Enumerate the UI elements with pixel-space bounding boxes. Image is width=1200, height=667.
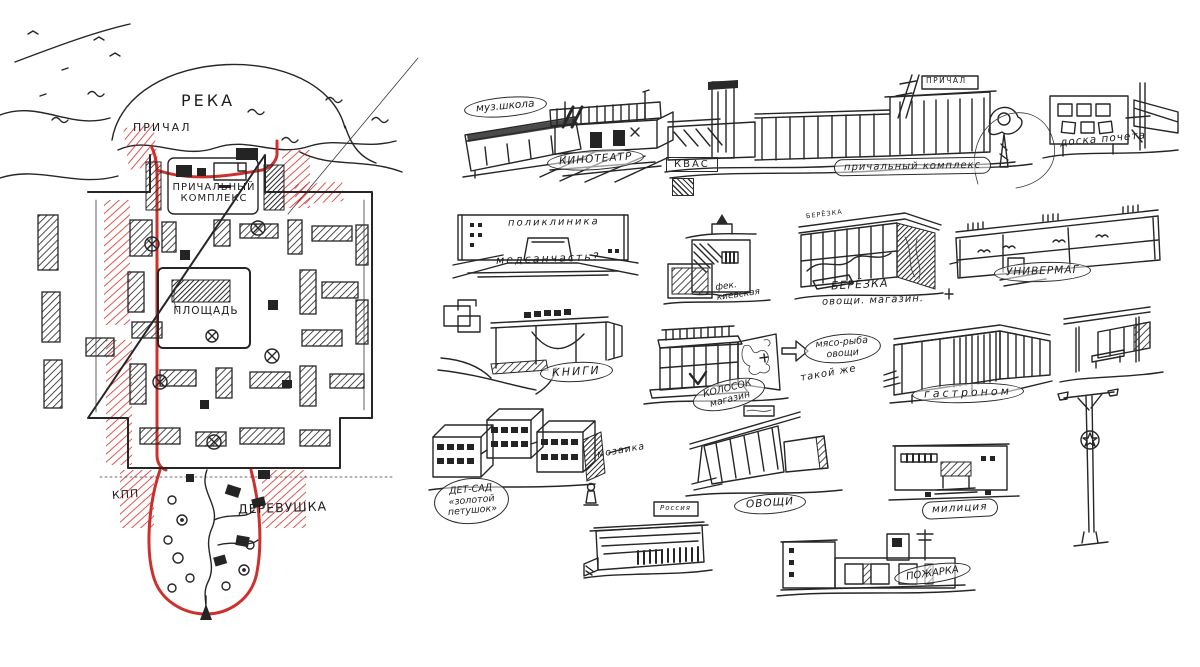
meat-fish-note: мясо-рыба овощи (803, 331, 882, 367)
street-lamp-sketch (1052, 382, 1122, 557)
pier-label: ПРИЧАЛ (133, 122, 191, 134)
kvass-stand-post (672, 178, 694, 196)
books-sketch (436, 298, 626, 398)
meat-fish-subnote: такой же (799, 363, 857, 384)
river-label: РЕКА (181, 92, 235, 110)
square-label: ПЛОЩАДЬ (163, 306, 249, 318)
univermag-sketch (948, 200, 1178, 295)
pier-complex-label: ПРИЧАЛЬНЫЙ КОМПЛЕКС (170, 182, 258, 204)
polyclinic-facade-sign: поликлиника (508, 216, 600, 229)
militia-sketch (885, 428, 1025, 508)
honor-board-sketch (1038, 78, 1188, 163)
bus-stop-sketch (1058, 298, 1168, 393)
checkpoint-label: КПП (112, 488, 140, 502)
militia-label: милиция (922, 498, 998, 520)
sketchbook-page: РЕКА ПРИЧАЛ ПРИЧАЛЬНЫЙ КОМПЛЕКС ПЛОЩАДЬ … (0, 0, 1200, 667)
kvass-label: КВАС (666, 157, 718, 172)
pier-roof-sign: ПРИЧАЛ (926, 77, 967, 85)
polyclinic-sketch (448, 203, 643, 283)
pier-complex-sketch-label: причальный комплекс (834, 157, 991, 177)
ovoschi-sketch (682, 402, 847, 507)
rossiya-roof-sign: Россия (660, 505, 691, 513)
rossiya-sketch (582, 498, 717, 588)
